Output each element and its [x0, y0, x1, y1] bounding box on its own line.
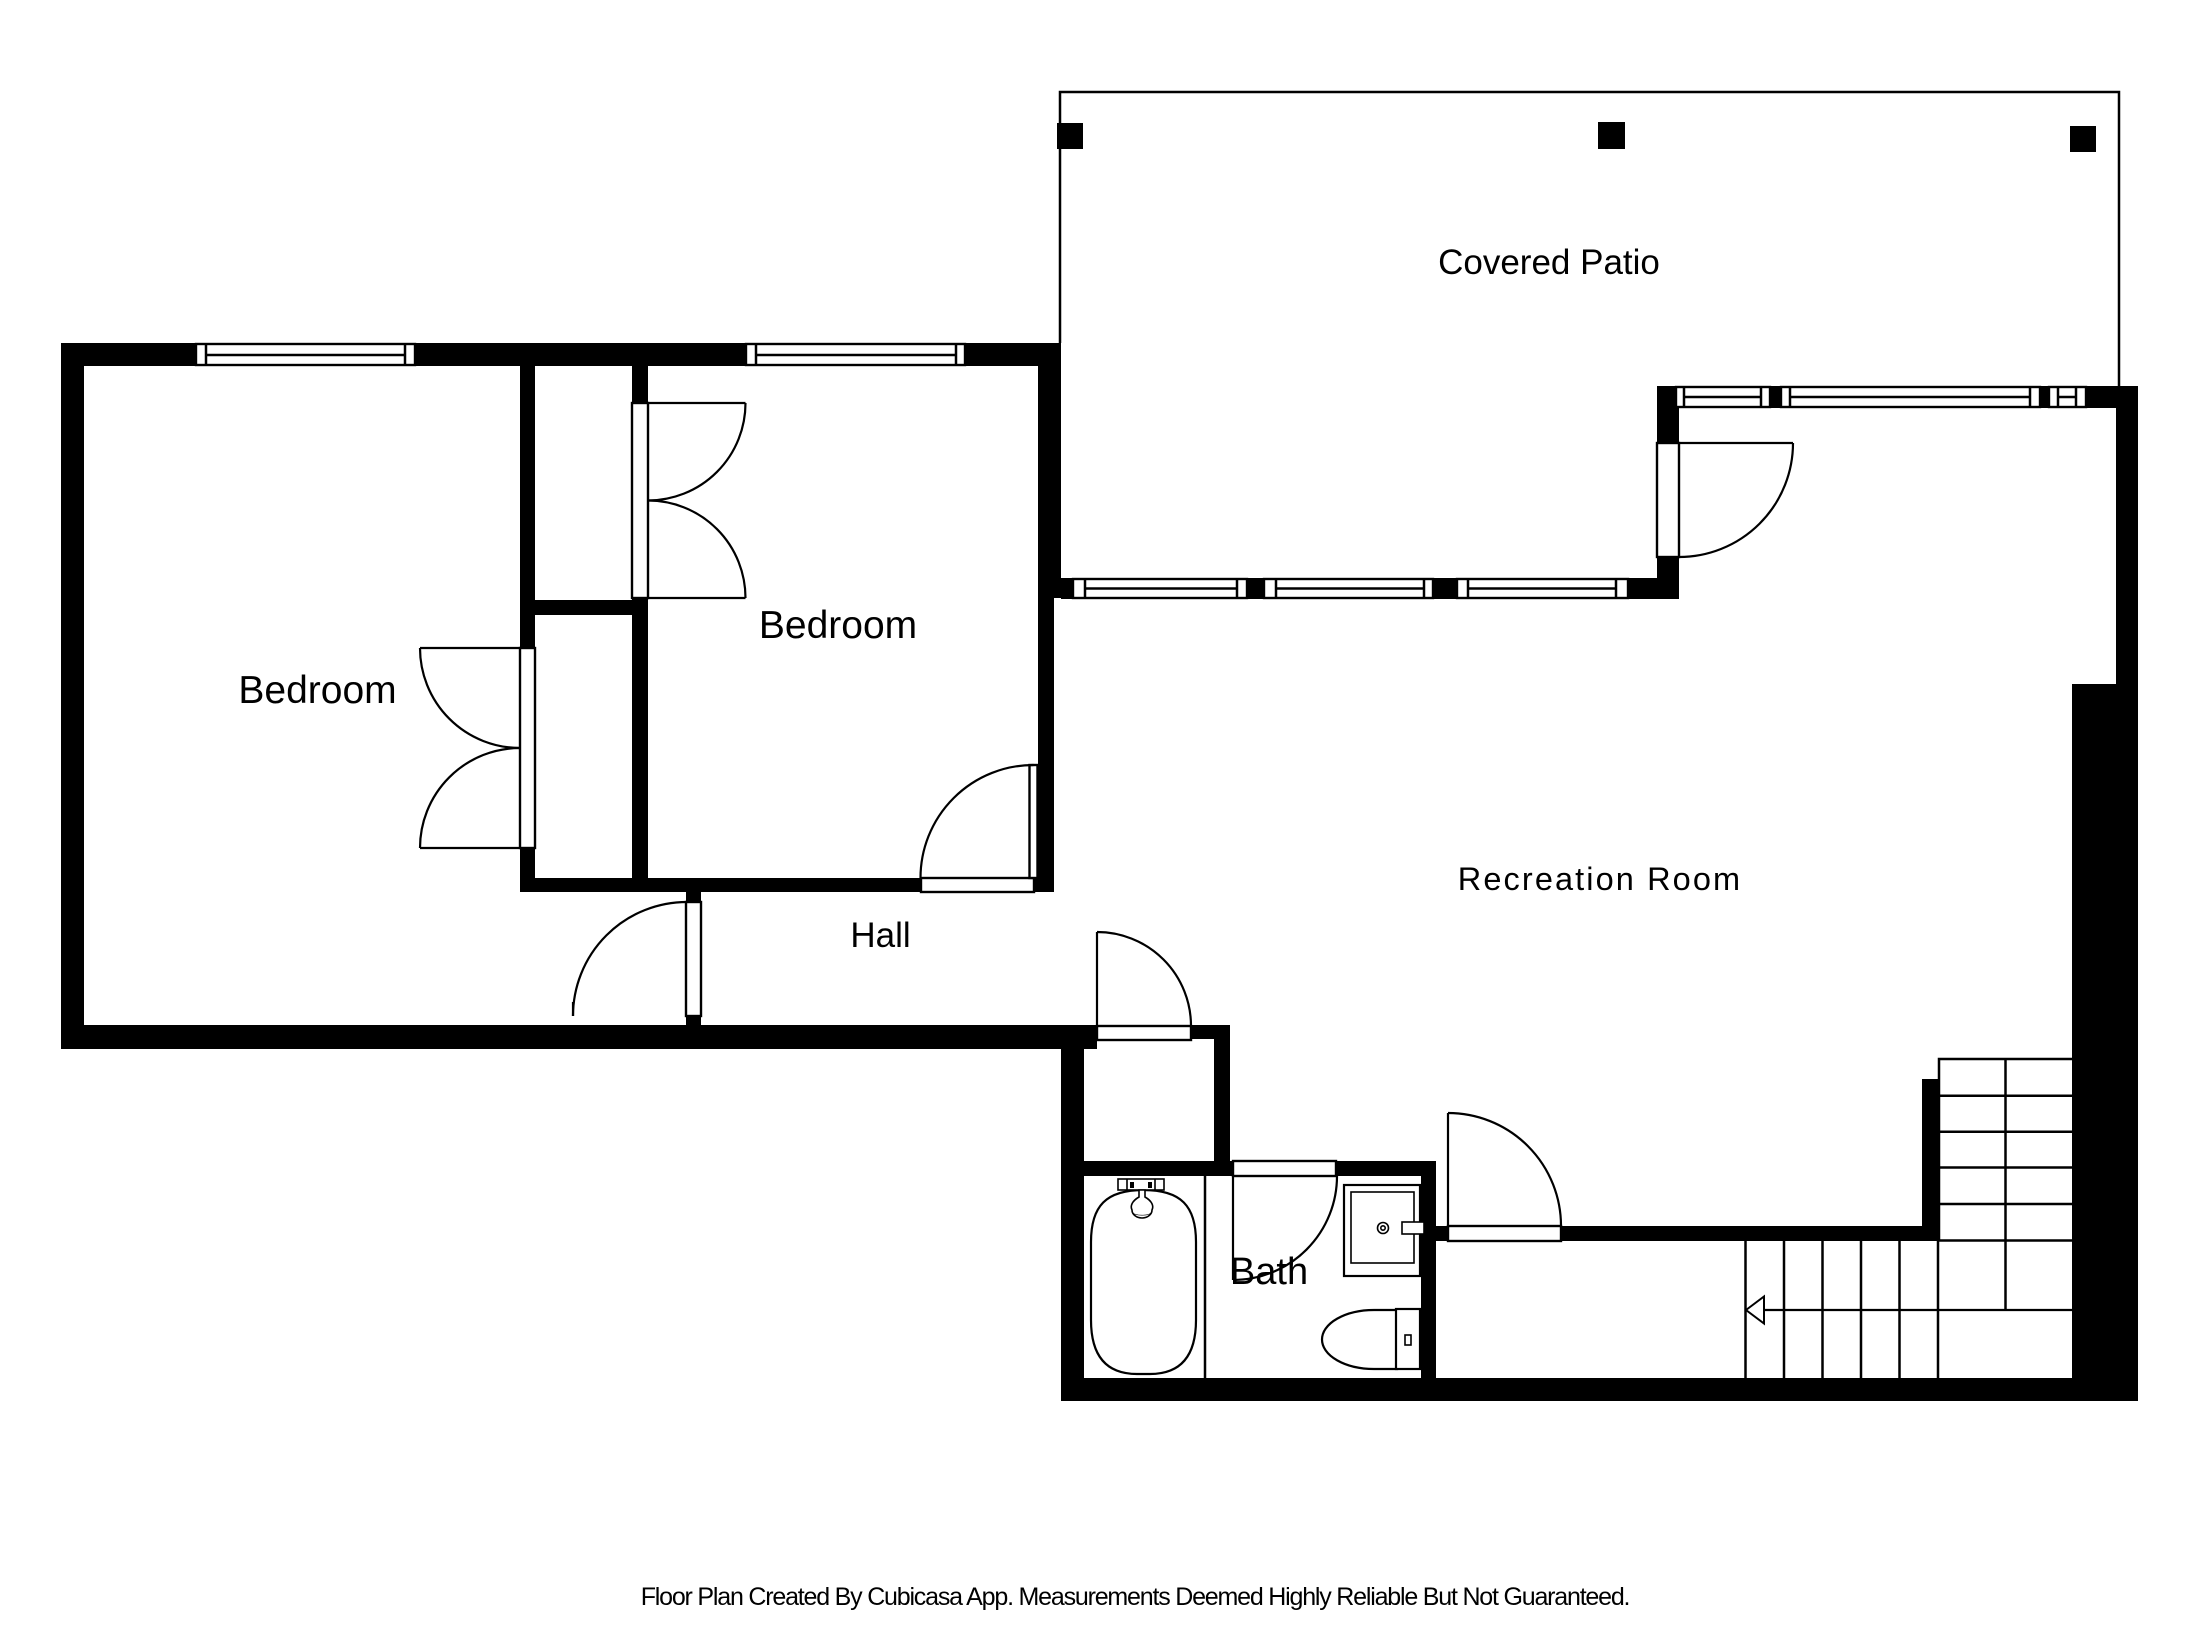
svg-text:Bedroom: Bedroom	[238, 669, 396, 712]
svg-text:Recreation Room: Recreation Room	[1458, 861, 1742, 897]
svg-text:Covered Patio: Covered Patio	[1438, 243, 1660, 282]
svg-text:Hall: Hall	[850, 916, 910, 955]
svg-text:Floor Plan Created By Cubicasa: Floor Plan Created By Cubicasa App. Meas…	[641, 1583, 1630, 1611]
svg-text:Bedroom: Bedroom	[759, 604, 917, 647]
svg-text:Bath: Bath	[1230, 1251, 1308, 1293]
